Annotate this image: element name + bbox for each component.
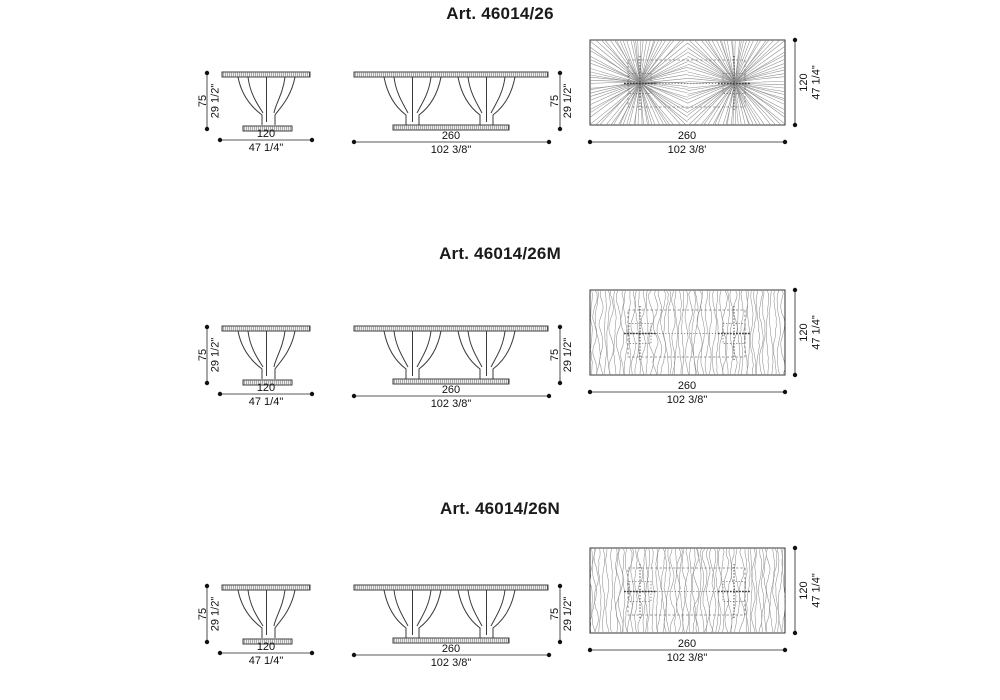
pedestal-outlines — [384, 331, 515, 379]
front-view-drawing: 75 29 1/2" 260 102 3/8" — [336, 314, 586, 414]
width-cm: 260 — [678, 380, 696, 392]
width-dimension: 120 47 1/4" — [218, 382, 314, 408]
height-dimension: 75 29 1/2" — [549, 325, 574, 385]
height-in: 29 1/2" — [562, 338, 574, 373]
width-in: 102 3/8" — [667, 394, 708, 406]
height-cm: 75 — [549, 608, 561, 620]
pedestal-outline — [238, 77, 295, 125]
width-in: 47 1/4" — [249, 396, 284, 408]
article-title: Art. 46014/26M — [0, 244, 1000, 264]
height-in: 29 1/2" — [562, 84, 574, 119]
height-cm: 75 — [549, 349, 561, 361]
width-cm: 120 — [257, 128, 275, 140]
depth-cm: 120 — [798, 581, 810, 599]
depth-in: 47 1/4" — [811, 315, 823, 350]
side-view-drawing: 75 29 1/2" 120 47 1/4" — [182, 573, 332, 673]
height-in: 29 1/2" — [210, 597, 222, 632]
depth-dimension: 120 47 1/4" — [793, 288, 823, 377]
technical-sheet: Art. 46014/26 75 29 1/2" 1 — [0, 0, 1000, 700]
width-in: 102 3/8" — [667, 652, 708, 664]
height-cm: 75 — [197, 95, 209, 107]
width-dimension: 260 102 3/8" — [352, 643, 551, 669]
width-dimension: 260 102 3/8" — [588, 380, 787, 406]
article-title: Art. 46014/26 — [0, 4, 1000, 24]
depth-cm: 120 — [798, 73, 810, 91]
side-view-drawing: 75 29 1/2" 120 47 1/4" — [182, 60, 332, 160]
height-cm: 75 — [197, 349, 209, 361]
height-dimension: 75 29 1/2" — [197, 71, 222, 131]
width-dimension: 260 102 3/8" — [588, 638, 787, 664]
width-in: 102 3/8' — [668, 144, 707, 156]
height-dimension: 75 29 1/2" — [549, 71, 574, 131]
height-dimension: 75 29 1/2" — [549, 584, 574, 644]
width-cm: 260 — [442, 384, 460, 396]
width-cm: 260 — [442, 130, 460, 142]
width-cm: 260 — [442, 643, 460, 655]
side-view-drawing: 75 29 1/2" 120 47 1/4" — [182, 314, 332, 414]
height-dimension: 75 29 1/2" — [197, 325, 222, 385]
pedestal-outlines — [384, 590, 515, 638]
front-view-drawing: 75 29 1/2" 260 102 3/8" — [336, 573, 586, 673]
top-view-drawing: 120 47 1/4" 260 102 3/8' — [580, 32, 830, 172]
article-title: Art. 46014/26N — [0, 499, 1000, 519]
pedestal-outline — [238, 331, 295, 379]
pedestal-outlines — [384, 77, 515, 125]
width-in: 102 3/8" — [431, 657, 472, 669]
width-in: 47 1/4" — [249, 142, 284, 154]
width-dimension: 260 102 3/8" — [352, 130, 551, 156]
width-dimension: 120 47 1/4" — [218, 128, 314, 154]
height-in: 29 1/2" — [210, 338, 222, 373]
top-view-drawing: 120 47 1/4" 260 102 3/8" — [580, 540, 830, 680]
depth-dimension: 120 47 1/4" — [793, 38, 823, 127]
width-dimension: 260 102 3/8" — [352, 384, 551, 410]
depth-cm: 120 — [798, 323, 810, 341]
front-view-drawing: 75 29 1/2" 260 102 3/8" — [336, 60, 586, 160]
height-dimension: 75 29 1/2" — [197, 584, 222, 644]
top-view-drawing: 120 47 1/4" 260 102 3/8" — [580, 282, 830, 422]
width-dimension: 120 47 1/4" — [218, 641, 314, 667]
height-in: 29 1/2" — [210, 84, 222, 119]
width-cm: 120 — [257, 641, 275, 653]
width-cm: 260 — [678, 130, 696, 142]
pedestal-outline — [238, 590, 295, 638]
width-in: 102 3/8" — [431, 398, 472, 410]
width-dimension: 260 102 3/8' — [588, 130, 787, 156]
height-cm: 75 — [197, 608, 209, 620]
height-cm: 75 — [549, 95, 561, 107]
width-in: 47 1/4" — [249, 655, 284, 667]
height-in: 29 1/2" — [562, 597, 574, 632]
depth-dimension: 120 47 1/4" — [793, 546, 823, 635]
depth-in: 47 1/4" — [811, 573, 823, 608]
depth-in: 47 1/4" — [811, 65, 823, 100]
width-in: 102 3/8" — [431, 144, 472, 156]
width-cm: 260 — [678, 638, 696, 650]
width-cm: 120 — [257, 382, 275, 394]
